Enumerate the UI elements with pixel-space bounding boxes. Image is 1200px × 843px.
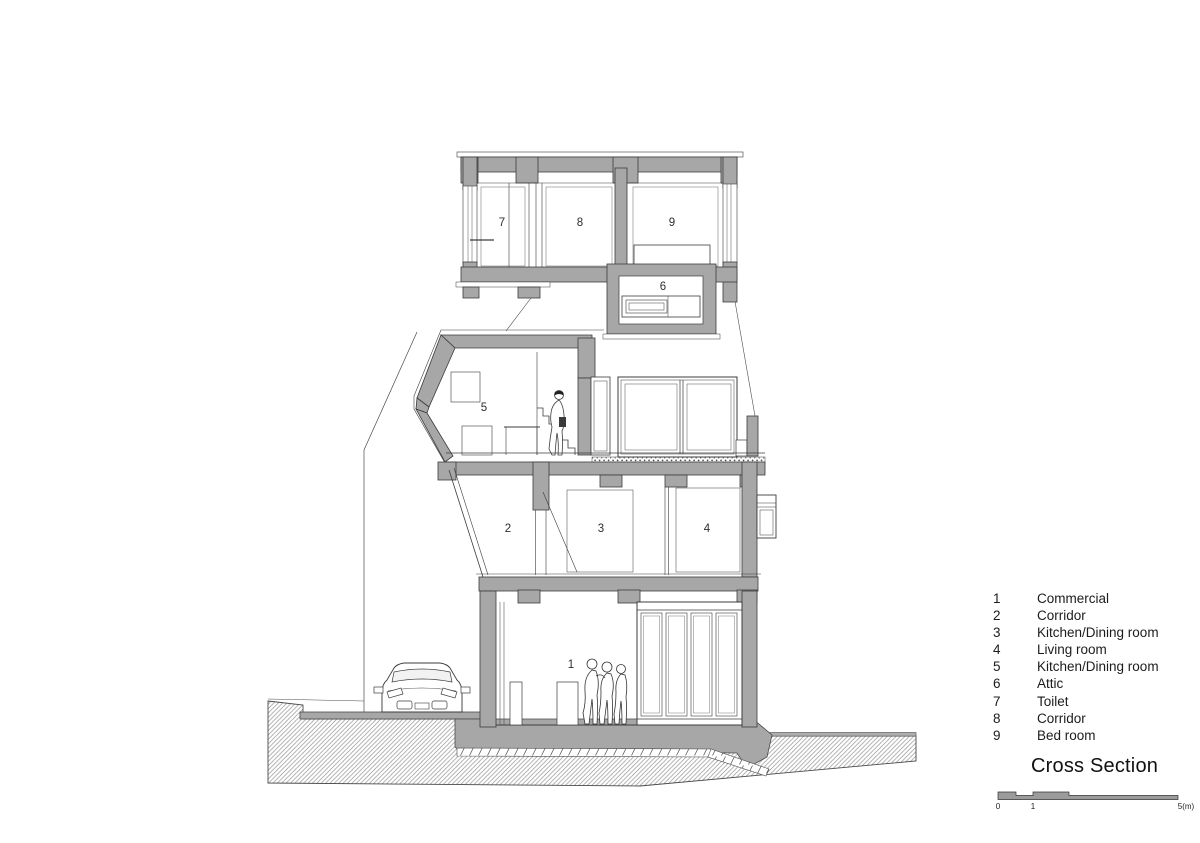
car [374, 663, 470, 712]
glazed-door [637, 602, 742, 725]
door-7-8 [509, 183, 542, 267]
legend-number: 9 [993, 727, 1037, 744]
legend-number: 2 [993, 607, 1037, 624]
person-head [617, 665, 626, 674]
room5-right-wall [578, 378, 591, 455]
stair-behind [543, 492, 577, 572]
room-label-4: 4 [704, 523, 711, 535]
legend-number: 3 [993, 624, 1037, 641]
scale-bar-steps [998, 792, 1178, 800]
exterior-wall [723, 157, 737, 188]
legend-number: 8 [993, 710, 1037, 727]
base-cabinet [462, 426, 492, 455]
scale-label-5m: 5(m) [1178, 802, 1195, 811]
partition-8-9 [615, 168, 627, 267]
legend-label: Attic [1037, 675, 1200, 692]
pedestal [557, 682, 578, 725]
sloped-wall-inner [454, 468, 488, 575]
right-wall [742, 591, 757, 727]
ceiling-beam-block [600, 475, 622, 487]
legend-row-9: 9 Bed room [993, 727, 1200, 744]
legend-row-7: 7 Toilet [993, 693, 1200, 710]
legend-row-6: 6 Attic [993, 675, 1200, 692]
building-outline-behind [364, 332, 417, 712]
garage-platform [300, 712, 484, 719]
scale-bar: 0 1 5(m) [996, 792, 1195, 811]
person-head [602, 662, 612, 672]
legend-label: Corridor [1037, 607, 1200, 624]
floor-beam-block [518, 287, 540, 298]
roof-beam-block [516, 157, 538, 183]
sloped-wall-outer [449, 470, 483, 577]
floor-beam-block [463, 287, 479, 298]
legend-label: Kitchen/Dining room [1037, 624, 1200, 641]
room-label-2: 2 [505, 523, 511, 535]
ceiling-beam-block [665, 475, 687, 487]
car-mirror [374, 687, 383, 693]
room-label-1: 1 [568, 659, 574, 671]
ceiling-beam-block [618, 590, 640, 603]
room5-sloped-wall-lower [416, 409, 453, 462]
driveway-line [268, 699, 364, 701]
legend-row-4: 4 Living room [993, 641, 1200, 658]
scale-label-1: 1 [1031, 802, 1036, 811]
wall-window [723, 184, 737, 264]
room5-head-beam [578, 338, 595, 378]
room-label-3: 3 [598, 523, 604, 535]
legend-number: 6 [993, 675, 1037, 692]
room5-roof-slab [441, 335, 592, 348]
legend-label: Toilet [1037, 693, 1200, 710]
legend-number: 5 [993, 658, 1037, 675]
sidewalk-right [753, 733, 916, 737]
middle-level [414, 330, 765, 487]
legend-row-3: 3 Kitchen/Dining room [993, 624, 1200, 641]
pedestal [510, 682, 522, 725]
terrace-windows [618, 377, 737, 457]
room-label-7: 7 [499, 217, 505, 229]
legend-row-2: 2 Corridor [993, 607, 1200, 624]
car-mirror [461, 687, 470, 693]
attic-chest [622, 296, 700, 317]
room-label-8: 8 [577, 217, 583, 229]
left-wall [480, 591, 496, 727]
legend-label: Commercial [1037, 590, 1200, 607]
legend-label: Bed room [1037, 727, 1200, 744]
slab-corner-block [438, 462, 456, 480]
legend-row-1: 1 Commercial [993, 590, 1200, 607]
cross-section-sheet: 1 2 3 4 5 6 7 8 9 0 1 5(m) 1 Commercial … [0, 0, 1200, 843]
legend-label: Kitchen/Dining room [1037, 658, 1200, 675]
car-intake [432, 701, 447, 709]
room-label-5: 5 [481, 402, 487, 414]
attic-eaves [603, 334, 720, 339]
legend: 1 Commercial 2 Corridor 3 Kitchen/Dining… [993, 590, 1200, 744]
terrace-sill-box [736, 440, 747, 456]
car-plate [415, 703, 429, 709]
lower-floor-slab [479, 577, 758, 591]
legend-label: Corridor [1037, 710, 1200, 727]
right-wall [742, 462, 757, 577]
person [599, 673, 613, 724]
legend-label: Living room [1037, 641, 1200, 658]
exterior-wall [463, 157, 477, 190]
attic [603, 264, 720, 339]
person [614, 674, 627, 724]
ceiling-beam-block [518, 590, 540, 603]
person [583, 670, 598, 724]
wall-cabinet [451, 372, 480, 402]
person-head [587, 659, 597, 669]
legend-row-8: 8 Corridor [993, 710, 1200, 727]
drawing-title: Cross Section [1031, 755, 1158, 778]
room-label-6: 6 [660, 281, 666, 293]
person-on-stairs [549, 391, 566, 456]
page: { "drawing": { "room_labels": [ {"number… [0, 0, 1200, 843]
floor-cap [456, 282, 550, 287]
legend-number: 4 [993, 641, 1037, 658]
room5-window [591, 377, 610, 455]
roof-cap [457, 152, 743, 157]
car-intake [397, 701, 412, 709]
scale-label-0: 0 [996, 802, 1001, 811]
room-label-9: 9 [669, 217, 675, 229]
terrace-post [747, 416, 758, 456]
table [504, 427, 540, 455]
ground [268, 699, 916, 786]
roof-slab [461, 157, 737, 172]
middle-floor-slab [446, 462, 765, 475]
room5-sloped-wall-upper [417, 335, 455, 407]
people-group [583, 659, 627, 724]
leader-line-left [506, 298, 531, 331]
legend-number: 1 [993, 590, 1037, 607]
ground-floor [480, 591, 757, 727]
legend-row-5: 5 Kitchen/Dining room [993, 658, 1200, 675]
legend-number: 7 [993, 693, 1037, 710]
wall-window [463, 186, 477, 264]
bay-box [757, 495, 776, 538]
wall-2-3 [533, 462, 549, 510]
